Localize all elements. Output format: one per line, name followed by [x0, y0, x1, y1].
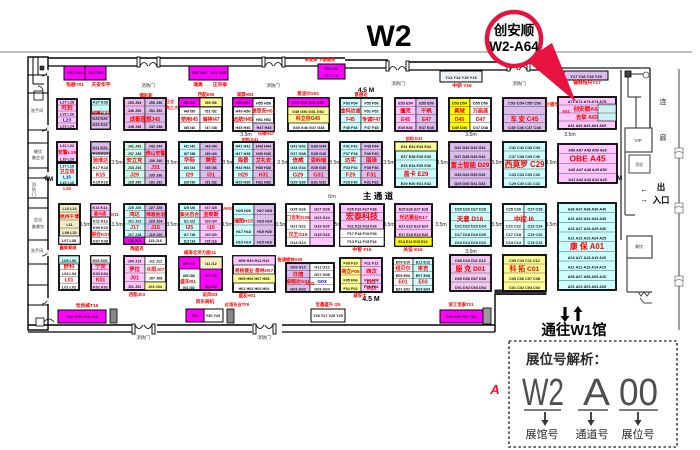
- svg-text:L27 L28: L27 L28: [60, 101, 74, 105]
- svg-text:创安顺A64: 创安顺A64: [572, 105, 601, 113]
- svg-text:L19 L20: L19 L20: [60, 158, 74, 162]
- svg-text:G43 G44: G43 G44: [311, 145, 327, 149]
- svg-text:洗手间: 洗手间: [31, 247, 44, 254]
- svg-text:D21 D22 D23 D24: D21 D22 D23 D24: [455, 224, 487, 228]
- svg-text:诚盟H53: 诚盟H53: [237, 91, 254, 98]
- svg-text:F29 F30: F29 F30: [343, 180, 357, 184]
- svg-text:会议: 会议: [34, 216, 43, 223]
- svg-text:G11 G12: G11 G12: [314, 266, 329, 270]
- svg-text:G29: G29: [293, 172, 304, 178]
- svg-text:G03: G03: [306, 281, 315, 286]
- svg-text:I43 I44: I43 I44: [205, 145, 217, 149]
- svg-text:J35 J36: J35 J36: [149, 173, 163, 177]
- svg-text:G41 G42: G41 G42: [290, 145, 305, 149]
- svg-text:C33 C34 C35 C36: C33 C34 C35 C36: [509, 173, 540, 177]
- svg-text:A71 A72 A73 A74 A75: A71 A72 A73 A74 A75: [568, 100, 606, 104]
- svg-text:J47 J48: J47 J48: [149, 125, 163, 129]
- svg-text:使用I45: 使用I45: [180, 116, 198, 123]
- svg-text:W2: W2: [522, 372, 564, 414]
- svg-text:K25 K26: K25 K26: [93, 117, 108, 121]
- svg-text:E05 E06: E05 E06: [396, 274, 411, 278]
- svg-text:J51 J52: J51 J52: [149, 109, 163, 113]
- svg-text:A: A: [583, 372, 611, 414]
- svg-text:D17 D18 D19 D20: D17 D18 D19 D20: [455, 233, 486, 237]
- svg-text:Y32: Y32: [192, 314, 199, 318]
- svg-text:服 克 D01: 服 克 D01: [456, 264, 486, 273]
- svg-text:来吉: 来吉: [418, 264, 429, 272]
- svg-text:F43 F44: F43 F44: [364, 145, 379, 149]
- svg-text:J31: J31: [151, 165, 160, 171]
- svg-text:F45 F46: F45 F46: [343, 126, 357, 130]
- svg-text:消防门: 消防门: [136, 334, 150, 341]
- svg-text:D47: D47: [476, 117, 486, 123]
- svg-text:I15 I16: I15 I16: [205, 240, 217, 244]
- svg-text:J29 J30: J29 J30: [128, 180, 142, 184]
- svg-text:E09 E10: E09 E10: [396, 260, 411, 264]
- svg-text:F35 F36: F35 F36: [364, 166, 378, 170]
- svg-text:F53 F54: F53 F54: [343, 101, 358, 105]
- svg-text:E45 E46: E45 E46: [398, 126, 413, 130]
- svg-text:海神I47: 海神I47: [202, 116, 219, 123]
- svg-text:D47 D48: D47 D48: [473, 126, 488, 130]
- svg-text:L07 L08: L07 L08: [62, 239, 76, 243]
- svg-text:F09 F10: F09 F10: [343, 262, 357, 266]
- svg-text:I29: I29: [186, 172, 194, 178]
- svg-text:J13 J14: J13 J14: [127, 239, 142, 243]
- svg-text:W2: W2: [367, 20, 412, 53]
- svg-text:F33 F34: F33 F34: [343, 166, 358, 170]
- svg-text:J53 J54: J53 J54: [128, 101, 143, 105]
- svg-text:VIP: VIP: [634, 138, 641, 143]
- svg-text:W2-A64: W2-A64: [489, 39, 539, 54]
- svg-text:亚泰斯: 亚泰斯: [203, 211, 219, 218]
- svg-text:吉联 A65: 吉联 A65: [576, 113, 598, 121]
- svg-text:L01: L01: [65, 278, 74, 284]
- svg-text:洗手间: 洗手间: [31, 107, 44, 114]
- svg-text:3.5m: 3.5m: [277, 160, 289, 166]
- svg-text:C23 C24: C23 C24: [528, 224, 544, 228]
- svg-text:K11 K12: K11 K12: [93, 220, 108, 224]
- svg-text:易格镀业 盘林H07: 易格镀业 盘林H07: [234, 267, 274, 274]
- svg-text:E37 E38 E39 E40: E37 E38 E39 E40: [401, 155, 431, 159]
- svg-text:J37 J38: J37 J38: [128, 152, 142, 156]
- svg-text:J49 J50: J49 J50: [128, 109, 142, 113]
- svg-text:F05 F06: F05 F06: [343, 279, 357, 283]
- svg-text:I53 I54: I53 I54: [183, 101, 195, 105]
- svg-text:鸿达: 鸿达: [129, 210, 140, 218]
- svg-text:日立: 日立: [166, 98, 175, 105]
- svg-text:3.5m: 3.5m: [111, 160, 123, 166]
- svg-text:J07 J08: J07 J08: [149, 277, 163, 281]
- svg-text:G07 G08: G07 G08: [314, 273, 329, 277]
- svg-text:I31: I31: [207, 172, 215, 178]
- svg-text:C45 C46 C47 C48: C45 C46 C47 C48: [508, 125, 541, 130]
- svg-text:I25: I25: [186, 225, 193, 231]
- svg-text:想思安H51: 想思安H51: [251, 108, 276, 115]
- svg-text:G31: G31: [313, 172, 324, 178]
- svg-text:L13 L14: L13 L14: [62, 207, 77, 211]
- svg-text:科立信G45: 科立信G45: [295, 115, 321, 122]
- svg-text:千帆: 千帆: [421, 107, 432, 115]
- svg-text:H15 H16: H15 H16: [257, 241, 272, 245]
- svg-text:J17: J17: [130, 225, 139, 231]
- svg-text:I17 I18: I17 I18: [184, 233, 196, 237]
- svg-text:盛东I01: 盛东I01: [180, 278, 196, 285]
- svg-text:E01 E02: E01 E02: [396, 288, 411, 292]
- svg-text:来变条 下期服务: 来变条 下期服务: [305, 56, 336, 63]
- svg-text:I33 I34: I33 I34: [184, 166, 196, 170]
- svg-text:I09 I10: I09 I10: [183, 262, 195, 266]
- svg-text:I41 I42: I41 I42: [184, 145, 196, 149]
- svg-text:3.5m: 3.5m: [564, 132, 576, 138]
- svg-text:朗合K07: 朗合K07: [91, 231, 110, 238]
- svg-text:G09 G10: G09 G10: [290, 266, 305, 270]
- svg-text:J11 J12: J11 J12: [149, 260, 163, 264]
- svg-text:D29 D30 D31 D32: D29 D30 D31 D32: [454, 182, 485, 186]
- svg-text:I51 I52: I51 I52: [205, 110, 217, 114]
- svg-text:富士智能 D29: 富士智能 D29: [451, 160, 490, 169]
- svg-text:G39 G40: G39 G40: [311, 152, 326, 156]
- svg-text:J27 J28: J27 J28: [149, 206, 163, 210]
- svg-text:说风I03: 说风I03: [203, 291, 218, 298]
- svg-text:G13 G14: G13 G14: [290, 241, 306, 245]
- svg-text:丽泽: 丽泽: [366, 156, 378, 164]
- svg-text:H09 H10 H11 H12: H09 H10 H11 H12: [239, 259, 270, 263]
- svg-text:G35 G36: G35 G36: [311, 166, 326, 170]
- svg-text:展位号: 展位号: [622, 427, 655, 441]
- svg-text:H23 H24: H23 H24: [257, 220, 273, 224]
- svg-text:瑞图H15: 瑞图H15: [234, 218, 253, 225]
- svg-text:宝鑫盛升 I25: 宝鑫盛升 I25: [316, 301, 341, 308]
- svg-text:C53 C54 C55 C56: C53 C54 C55 C56: [508, 100, 541, 105]
- svg-text:Y13 Y14 Y15 Y16: Y13 Y14 Y15 Y16: [445, 75, 477, 80]
- svg-text:E45: E45: [401, 117, 410, 123]
- svg-text:E13 E14 E15 E16: E13 E14 E15 E16: [398, 240, 427, 244]
- svg-text:C17 C18: C17 C18: [506, 233, 521, 237]
- svg-text:L15 L16: L15 L16: [60, 181, 74, 185]
- svg-text:西汶: 西汶: [366, 267, 377, 275]
- svg-text:Y26 Y25 Y24 Y23: Y26 Y25 Y24 Y23: [66, 314, 98, 319]
- svg-text:E07 E08: E07 E08: [416, 274, 431, 278]
- svg-text:C09 C10 C11 C12: C09 C10 C11 C12: [509, 259, 540, 263]
- svg-text:E47: E47: [422, 117, 431, 123]
- svg-text:C13 C14: C13 C14: [506, 241, 522, 245]
- svg-text:正宗泰: 正宗泰: [213, 81, 228, 88]
- svg-text:J17 J18: J17 J18: [128, 233, 142, 237]
- svg-text:K23 K24: K23 K24: [93, 123, 109, 127]
- svg-text:D37 D38 D39 D40: D37 D38 D39 D40: [454, 155, 485, 159]
- svg-text:→: →: [640, 195, 648, 204]
- svg-text:A26 A27 A28 A29 A30: A26 A27 A28 A29 A30: [568, 227, 606, 231]
- svg-text:J25 J26: J25 J26: [128, 206, 142, 210]
- svg-text:H47 H48: H47 H48: [257, 126, 272, 130]
- svg-text:同乐阀机: 同乐阀机: [196, 298, 215, 305]
- svg-text:嘉讯通: 嘉讯通: [93, 210, 106, 216]
- svg-text:关设 E16: 关设 E16: [403, 246, 423, 253]
- svg-text:G21 G22: G21 G22: [290, 224, 305, 228]
- svg-text:K07 K08: K07 K08: [93, 240, 108, 244]
- svg-text:3.5m: 3.5m: [111, 222, 123, 228]
- svg-text:00: 00: [619, 372, 658, 414]
- svg-text:C25 C26: C25 C26: [506, 208, 521, 212]
- svg-text:艾礼安: 艾礼安: [256, 157, 271, 164]
- svg-text:F17 F18 F19 F20: F17 F18 F19 F20: [347, 232, 376, 236]
- svg-text:D45 D46: D45 D46: [452, 126, 467, 130]
- svg-text:I03 I04: I03 I04: [205, 285, 217, 289]
- svg-text:3.5m: 3.5m: [383, 222, 395, 228]
- svg-text:消防门: 消防门: [266, 82, 280, 89]
- svg-text:L09 L10: L09 L10: [62, 231, 76, 235]
- svg-text:佛山安警: 佛山安警: [145, 150, 166, 157]
- svg-text:浙江宝泰T21: 浙江宝泰T21: [448, 301, 474, 308]
- svg-text:H01 H02 H03 H04: H01 H02 H03 H04: [238, 287, 270, 291]
- svg-text:J01: J01: [130, 276, 139, 282]
- svg-text:廊: 廊: [660, 133, 667, 142]
- svg-text:日煊: 日煊: [293, 270, 304, 278]
- svg-text:C15 C16: C15 C16: [528, 241, 543, 245]
- svg-text:I39 I40: I39 I40: [205, 152, 217, 156]
- svg-text:A56 A57 A58 A59 A60: A56 A57 A58 A59 A60: [568, 149, 606, 153]
- svg-text:安警L19: 安警L19: [58, 149, 76, 156]
- svg-text:J03 J04: J03 J04: [148, 285, 163, 289]
- svg-text:I27 I28: I27 I28: [205, 206, 217, 210]
- svg-text:红塔东业TF9: 红塔东业TF9: [225, 301, 250, 308]
- svg-text:D01 D02 D03 D04: D01 D02 D03 D04: [455, 286, 487, 290]
- svg-text:3.5m: 3.5m: [383, 160, 395, 166]
- svg-text:通道号: 通道号: [576, 427, 609, 441]
- svg-text:G15 G16: G15 G16: [314, 233, 329, 237]
- svg-text:安立克: 安立克: [126, 156, 143, 164]
- svg-text:真珹: 真珹: [454, 107, 465, 115]
- svg-text:J39 J40: J39 J40: [149, 159, 163, 163]
- svg-text:瑞奥: 瑞奥: [193, 81, 203, 88]
- svg-text:K17 K18: K17 K18: [93, 166, 108, 170]
- svg-text:展位号解析：: 展位号解析：: [526, 351, 607, 367]
- svg-text:G37 G38: G37 G38: [290, 152, 305, 156]
- svg-text:A46 A47 A48 A49 A50: A46 A47 A48 A49 A50: [568, 168, 606, 172]
- svg-text:J19 J20: J19 J20: [149, 233, 163, 237]
- svg-text:6m: 6m: [328, 194, 336, 200]
- svg-text:兰德华: 兰德华: [545, 101, 559, 108]
- svg-text:I49 I50: I49 I50: [184, 110, 196, 114]
- svg-text:K03 K04: K03 K04: [93, 272, 109, 276]
- svg-text:A11 A12 A13 A14 A15: A11 A12 A13 A14 A15: [568, 266, 606, 270]
- svg-text:I47 I48: I47 I48: [205, 126, 217, 130]
- svg-text:L21 L22: L21 L22: [60, 144, 74, 148]
- svg-text:F29: F29: [346, 172, 356, 178]
- svg-text:光达嘉业E17: 光达嘉业E17: [398, 214, 427, 221]
- svg-text:A61: A61: [562, 109, 570, 114]
- svg-text:J43 J44: J43 J44: [149, 145, 164, 149]
- svg-text:H51 H52: H51 H52: [256, 118, 271, 122]
- svg-text:K13 K14: K13 K14: [93, 206, 109, 210]
- svg-text:E33 E34 E35 E36: E33 E34 E35 E36: [401, 164, 431, 168]
- svg-text:E11 E12: E11 E12: [416, 260, 430, 264]
- svg-text:Y01 Y02: Y01 Y02: [67, 70, 83, 75]
- svg-text:I29 I30: I29 I30: [184, 180, 196, 184]
- svg-text:K01: K01: [96, 278, 106, 284]
- svg-text:金科达诚: 金科达诚: [340, 108, 361, 115]
- svg-text:中智 F16: 中智 F16: [352, 246, 372, 253]
- svg-text:鑫美泰诚: 鑫美泰诚: [59, 244, 78, 251]
- svg-text:3.5m: 3.5m: [275, 222, 287, 228]
- svg-text:D05 D06 D07 D08: D05 D06 D07 D08: [455, 277, 486, 281]
- svg-text:镇林恒兴Y17: 镇林恒兴Y17: [573, 79, 601, 86]
- svg-text:G01 G02: G01 G02: [290, 287, 305, 291]
- svg-text:中骄 Y16: 中骄 Y16: [452, 82, 472, 89]
- svg-text:门吉利G25: 门吉利G25: [286, 214, 310, 221]
- svg-text:G03 G04: G03 G04: [314, 287, 330, 291]
- svg-text:F45: F45: [346, 117, 355, 123]
- svg-text:G03: G03: [317, 279, 326, 285]
- svg-text:智通镀锌G09: 智通镀锌G09: [278, 256, 303, 263]
- svg-text:K01 K02: K01 K02: [93, 286, 108, 290]
- svg-text:G27 G28: G27 G28: [314, 208, 329, 212]
- svg-text:3.5m: 3.5m: [166, 222, 178, 228]
- svg-text:I15: I15: [207, 225, 214, 231]
- svg-text:D45: D45: [455, 117, 465, 123]
- svg-text:达实: 达实: [345, 156, 357, 164]
- svg-text:K21 K22: K21 K22: [93, 146, 108, 150]
- svg-text:天安华宇: 天安华宇: [91, 81, 110, 88]
- svg-text:A41 A42 A43 A44 A45: A41 A42 A43 A44 A45: [568, 178, 606, 182]
- svg-text:H31: H31: [259, 172, 269, 178]
- svg-text:康 保 A01: 康 保 A01: [570, 241, 605, 251]
- svg-text:3.5m: 3.5m: [491, 222, 503, 228]
- svg-text:G29 G30: G29 G30: [290, 180, 305, 184]
- svg-text:西配E55: 西配E55: [198, 91, 215, 98]
- svg-text:F39 F40: F39 F40: [364, 152, 378, 156]
- svg-text:E17 E18 E19 E20: E17 E18 E19 E20: [399, 233, 428, 237]
- svg-text:宝创威T16: 宝创威T16: [76, 302, 99, 309]
- svg-text:K15 K16: K15 K16: [93, 180, 108, 184]
- svg-text:L03 L04: L03 L04: [62, 272, 77, 276]
- svg-text:科 拓 C01: 科 拓 C01: [510, 264, 540, 273]
- svg-text:消防门: 消防门: [257, 334, 271, 341]
- svg-text:E01: E01: [398, 280, 407, 286]
- svg-text:紫光百合: 紫光百合: [180, 211, 199, 218]
- svg-text:G31 G32: G31 G32: [311, 180, 326, 184]
- svg-text:G49 G50 G51 G52: G49 G50 G51 G52: [292, 110, 324, 114]
- svg-text:美餐饮: 美餐饮: [32, 223, 45, 230]
- svg-text:J33 J34: J33 J34: [128, 166, 143, 170]
- svg-text:车 安 C45: 车 安 C45: [511, 114, 539, 123]
- svg-text:3.5m: 3.5m: [222, 160, 234, 166]
- svg-text:门: 门: [32, 191, 36, 198]
- svg-text:L25 L26: L25 L26: [60, 113, 74, 117]
- svg-text:创安顺: 创安顺: [493, 22, 535, 38]
- svg-text:3.5m: 3.5m: [221, 222, 233, 228]
- svg-text:Y30 Y29: Y30 Y29: [206, 314, 221, 318]
- svg-text:J31 J32: J31 J32: [149, 180, 163, 184]
- svg-text:H27 H28: H27 H28: [257, 209, 272, 213]
- svg-text:Y17 Y18 Y19 Y20: Y17 Y18 Y19 Y20: [570, 74, 602, 79]
- svg-text:A06 A07 A08 A09 A10: A06 A07 A08 A09 A10: [568, 275, 606, 279]
- svg-text:陶盛克: 陶盛克: [130, 245, 144, 252]
- svg-text:E29 E30 E31 E32: E29 E30 E31 E32: [401, 182, 431, 186]
- svg-text:杭州千博: 杭州千博: [60, 213, 79, 220]
- svg-text:F31: F31: [367, 172, 377, 178]
- svg-text:I31 I32: I31 I32: [205, 180, 217, 184]
- svg-text:I55 I56: I55 I56: [205, 101, 217, 105]
- svg-text:L23 L24: L23 L24: [60, 125, 75, 129]
- svg-text:F55 F56: F55 F56: [364, 101, 378, 105]
- svg-text:H41 H42: H41 H42: [236, 145, 251, 149]
- svg-text:A01 A02 A03 A04 A05: A01 A02 A03 A04 A05: [568, 285, 606, 289]
- svg-text:3.5m: 3.5m: [329, 160, 341, 166]
- svg-text:美会议: 美会议: [32, 154, 45, 161]
- svg-text:L17 L18: L17 L18: [60, 164, 74, 168]
- svg-text:I05 I06: I05 I06: [183, 274, 195, 278]
- svg-text:4M: 4M: [45, 177, 53, 183]
- svg-text:中控 I6: 中控 I6: [514, 214, 534, 223]
- svg-text:展馆号: 展馆号: [526, 427, 559, 441]
- svg-text:J01 J02: J01 J02: [128, 285, 142, 289]
- svg-text:信威: 信威: [292, 156, 304, 164]
- svg-text:L05 L06: L05 L06: [62, 259, 76, 263]
- svg-text:D09 D10 D11 D12: D09 D10 D11 D12: [455, 259, 486, 263]
- svg-text:C19 C20: C19 C20: [528, 233, 543, 237]
- svg-text:F13 F14 F15 F16: F13 F14 F15 F16: [347, 240, 376, 244]
- svg-text:主 通 道: 主 通 道: [363, 191, 394, 201]
- svg-text:创和 E41: 创和 E41: [405, 135, 424, 142]
- svg-text:盛友H01: 盛友H01: [239, 292, 256, 299]
- svg-text:思科瑞: 思科瑞: [311, 157, 326, 164]
- svg-text:H45 H46: H45 H46: [236, 126, 251, 130]
- svg-text:·: ·: [100, 107, 101, 111]
- svg-text:Y24 Y23 Y22 Y21: Y24 Y23 Y22 Y21: [446, 315, 476, 319]
- svg-text:F21 F22 F23 F24: F21 F22 F23 F24: [347, 224, 377, 228]
- svg-text:Y07 Y08: Y07 Y08: [210, 70, 226, 75]
- svg-text:C37 C38 C39 C40: C37 C38 C39 C40: [509, 155, 540, 159]
- svg-text:J21 J22: J21 J22: [128, 220, 142, 224]
- svg-text:美安: 美安: [205, 156, 217, 164]
- svg-text:A: A: [489, 382, 499, 397]
- svg-text:H55 H56: H55 H56: [256, 101, 271, 105]
- svg-text:I07 I08: I07 I08: [205, 274, 217, 278]
- svg-text:I23 I24: I23 I24: [205, 220, 217, 224]
- svg-text:商立F05: 商立F05: [341, 268, 359, 275]
- svg-text:I37 I38: I37 I38: [184, 152, 196, 156]
- svg-text:D53 D54: D53 D54: [452, 101, 468, 105]
- svg-text:H53 H54: H53 H54: [236, 101, 252, 105]
- svg-text:I25 I26: I25 I26: [184, 206, 196, 210]
- svg-text:J55 J56: J55 J56: [149, 101, 163, 105]
- svg-text:C21 C22: C21 C22: [506, 224, 521, 228]
- svg-text:J29: J29: [130, 172, 139, 178]
- svg-text:出: 出: [657, 182, 666, 192]
- svg-text:涂说: 涂说: [635, 162, 643, 167]
- svg-text:L01 L02: L01 L02: [62, 286, 76, 290]
- svg-text:F47 F48: F47 F48: [364, 126, 378, 130]
- svg-text:入口: 入口: [651, 195, 669, 205]
- svg-text:天意 D16: 天意 D16: [457, 214, 484, 223]
- svg-text:3.5m: 3.5m: [166, 160, 178, 166]
- svg-text:J15 J16: J15 J16: [148, 239, 162, 243]
- svg-text:E21 E22 E23 E24: E21 E22 E23 E24: [399, 224, 429, 228]
- svg-text:G25 G26: G25 G26: [290, 208, 305, 212]
- svg-text:先工大: 先工大: [166, 104, 179, 111]
- svg-text:K15: K15: [96, 172, 106, 178]
- svg-text:I13 I14: I13 I14: [184, 240, 196, 244]
- svg-text:F31 F32: F31 F32: [364, 180, 378, 184]
- svg-text:3.5m: 3.5m: [545, 160, 557, 166]
- svg-text:F37 F38: F37 F38: [343, 152, 357, 156]
- svg-text:D41 D42 D43 D44: D41 D42 D43 D44: [454, 146, 486, 150]
- svg-text:L15: L15: [63, 186, 71, 191]
- svg-text:OBE A45: OBE A45: [569, 153, 605, 163]
- svg-text:Y09 Y10: Y09 Y10: [324, 67, 338, 71]
